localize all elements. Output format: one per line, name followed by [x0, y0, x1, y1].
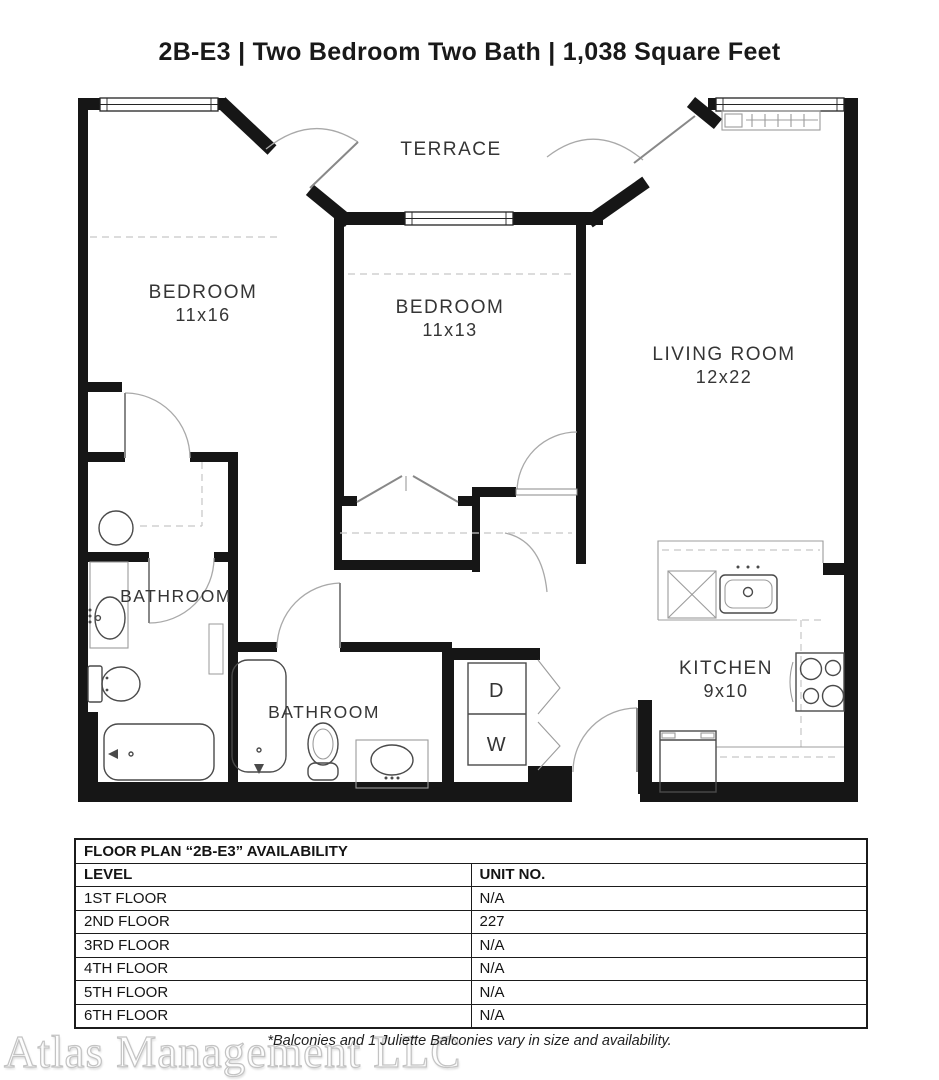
bedroom2-door — [516, 432, 577, 495]
living-room-dims: 12x22 — [696, 367, 753, 387]
kitchen-counter — [658, 541, 844, 747]
level-cell: 6TH FLOOR — [75, 1004, 471, 1028]
bedroom2-label: BEDROOM — [396, 297, 505, 318]
closet-hamper — [99, 511, 133, 545]
bedroom1-closet-door — [125, 393, 190, 458]
availability-table: FLOOR PLAN “2B-E3” AVAILABILITY LEVEL UN… — [74, 838, 868, 1029]
bedroom2-closet-bifold — [357, 476, 458, 502]
washer-dryer-bifold — [538, 660, 560, 770]
hall-door-arc — [505, 533, 547, 592]
table-row: 2ND FLOOR 227 — [75, 910, 867, 934]
linen-nook — [209, 624, 223, 674]
baseboard-heater — [722, 111, 820, 130]
bathroom2-label: BATHROOM — [268, 702, 380, 722]
living-room-label: LIVING ROOM — [652, 344, 795, 365]
bedroom1-label: BEDROOM — [149, 282, 258, 303]
bedroom1-dims: 11x16 — [175, 305, 230, 325]
kitchen-stove — [790, 653, 844, 711]
disclaimer-text: *Balconies and 1 Juliette Balconies vary… — [0, 1033, 939, 1049]
terrace-door-living-room — [547, 116, 695, 163]
kitchen-sink — [720, 566, 777, 614]
level-cell: 3RD FLOOR — [75, 934, 471, 958]
table-row: 3RD FLOOR N/A — [75, 934, 867, 958]
window-bedroom2 — [405, 212, 513, 225]
floor-plan-sheet: 2B-E3 | Two Bedroom Two Bath | 1,038 Squ… — [0, 0, 939, 1080]
table-title-row: FLOOR PLAN “2B-E3” AVAILABILITY — [75, 839, 867, 863]
unit-cell: N/A — [471, 1004, 867, 1028]
unit-cell: N/A — [471, 957, 867, 981]
table-row: 1ST FLOOR N/A — [75, 887, 867, 911]
terrace-door-bedroom1 — [266, 129, 358, 188]
bedroom2-dims: 11x13 — [422, 320, 477, 340]
washer-label: W — [487, 734, 507, 756]
column-header-unit-no: UNIT NO. — [471, 863, 867, 887]
table-row: 6TH FLOOR N/A — [75, 1004, 867, 1028]
bathroom1-label: BATHROOM — [120, 586, 232, 606]
entry-door — [573, 708, 637, 772]
unit-cell: 227 — [471, 910, 867, 934]
terrace-label: TERRACE — [400, 139, 501, 160]
table-header-row: LEVEL UNIT NO. — [75, 863, 867, 887]
bathroom2-sink — [356, 740, 428, 788]
kitchen-dims: 9x10 — [703, 681, 748, 701]
bathroom1-toilet — [88, 666, 140, 702]
unit-cell: N/A — [471, 981, 867, 1005]
bathroom2-toilet — [308, 723, 338, 780]
level-cell: 1ST FLOOR — [75, 887, 471, 911]
window-bedroom1 — [100, 98, 218, 111]
unit-cell: N/A — [471, 887, 867, 911]
table-row: 4TH FLOOR N/A — [75, 957, 867, 981]
level-cell: 5TH FLOOR — [75, 981, 471, 1005]
column-header-level: LEVEL — [75, 863, 471, 887]
unit-cell: N/A — [471, 934, 867, 958]
bathroom1-bathtub — [104, 724, 214, 780]
table-row: 5TH FLOOR N/A — [75, 981, 867, 1005]
bathroom2-door — [277, 583, 340, 648]
kitchen-label: KITCHEN — [679, 658, 773, 679]
table-title: FLOOR PLAN “2B-E3” AVAILABILITY — [75, 839, 867, 863]
window-living-room — [716, 98, 844, 111]
kitchen-dishwasher — [668, 571, 716, 618]
dryer-label: D — [489, 680, 505, 702]
level-cell: 4TH FLOOR — [75, 957, 471, 981]
windows — [100, 98, 844, 225]
level-cell: 2ND FLOOR — [75, 910, 471, 934]
